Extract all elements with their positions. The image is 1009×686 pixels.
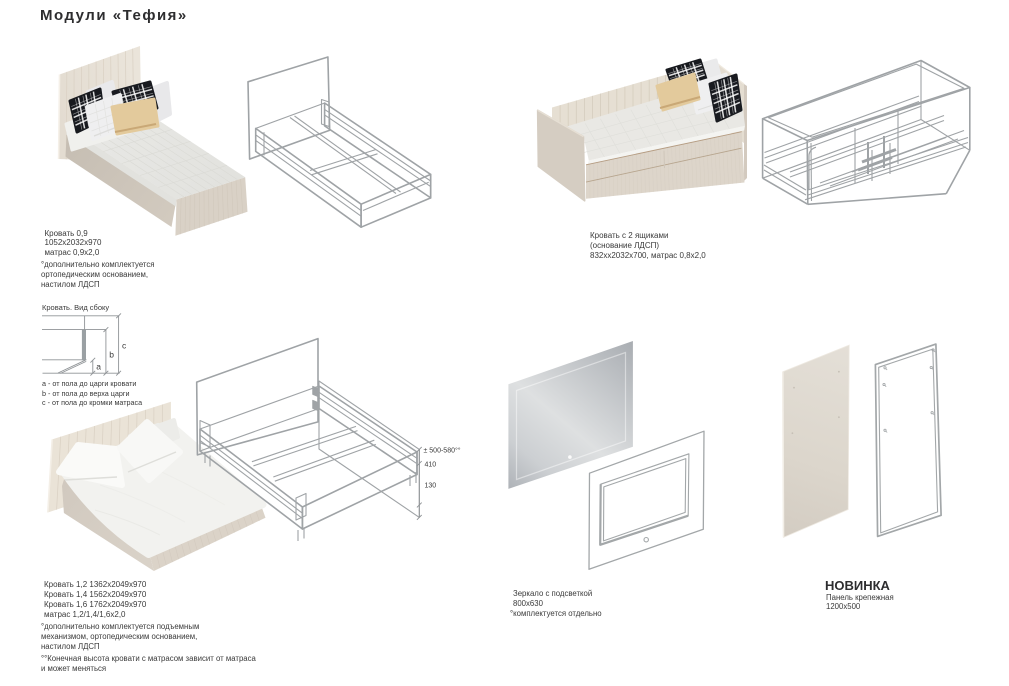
svg-text:410: 410 <box>425 462 437 469</box>
svg-text:± 500-580°°: ± 500-580°° <box>424 447 461 455</box>
svg-text:130: 130 <box>425 483 437 490</box>
svg-text:a: a <box>96 362 101 372</box>
svg-text:b: b <box>109 350 114 360</box>
svg-text:c: c <box>122 341 127 351</box>
